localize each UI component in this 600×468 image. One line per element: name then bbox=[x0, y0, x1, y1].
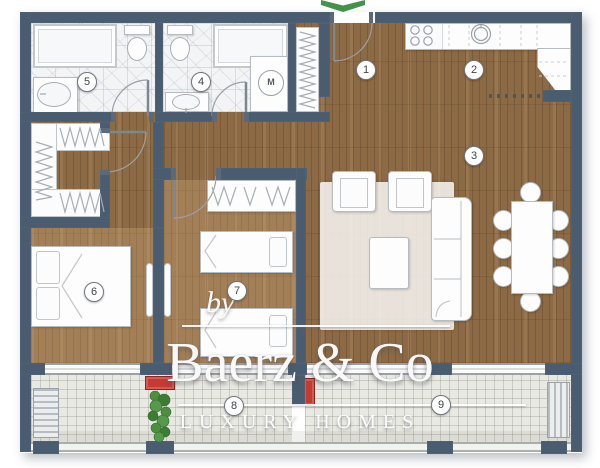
wall-segment bbox=[155, 23, 163, 112]
shower-5 bbox=[33, 24, 117, 68]
kitchen-pass-dots bbox=[489, 94, 541, 98]
walk-in-closet-bottom bbox=[31, 189, 110, 217]
wall-panel bbox=[164, 263, 171, 317]
dining-chair bbox=[520, 182, 541, 203]
wall-segment bbox=[545, 363, 582, 375]
room-number-badge-5: 5 bbox=[77, 72, 97, 92]
wall-segment bbox=[153, 228, 164, 363]
stove bbox=[406, 24, 443, 49]
wall-segment bbox=[20, 217, 110, 228]
railing-post bbox=[541, 441, 567, 454]
planter-red-1 bbox=[145, 376, 175, 390]
wardrobe-7 bbox=[207, 180, 296, 212]
pillow bbox=[269, 315, 287, 347]
wall-segment bbox=[296, 168, 306, 363]
ac-unit-8 bbox=[33, 388, 59, 438]
washing-machine-label: M bbox=[258, 70, 284, 96]
wall-segment bbox=[20, 112, 113, 122]
sink-4-basin bbox=[172, 94, 200, 110]
armchair-seat bbox=[340, 178, 368, 208]
coat-closet bbox=[296, 27, 319, 112]
armchair-1 bbox=[332, 171, 376, 212]
room-number-badge-1: 1 bbox=[356, 60, 376, 80]
wall-segment bbox=[140, 363, 172, 375]
wall-segment bbox=[20, 12, 330, 23]
wall-segment bbox=[220, 168, 307, 180]
room-number-badge-7: 7 bbox=[227, 281, 247, 301]
room-number-badge-8: 8 bbox=[224, 396, 244, 416]
coffee-table bbox=[369, 237, 409, 289]
wall-segment bbox=[20, 12, 31, 452]
railing-post bbox=[33, 441, 59, 454]
railing-post bbox=[146, 441, 174, 454]
wall-segment bbox=[153, 168, 173, 180]
wall-segment bbox=[292, 375, 305, 406]
room-number-badge-2: 2 bbox=[464, 60, 484, 80]
sofa bbox=[431, 197, 472, 321]
pillow bbox=[269, 237, 287, 267]
balcony-railing bbox=[31, 442, 571, 452]
window bbox=[307, 363, 430, 375]
ac-unit-9 bbox=[547, 382, 570, 438]
room-number-badge-9: 9 bbox=[431, 395, 451, 415]
dining-table bbox=[511, 201, 553, 294]
armchair-seat bbox=[396, 178, 424, 208]
wall-segment bbox=[100, 122, 110, 131]
wall-segment bbox=[155, 112, 214, 122]
floor-plan: M bbox=[0, 0, 600, 468]
wall-segment bbox=[430, 363, 452, 375]
wall-segment bbox=[288, 363, 307, 375]
railing-post bbox=[427, 441, 453, 454]
wall-segment bbox=[375, 12, 582, 23]
wall-segment bbox=[543, 90, 571, 102]
wall-segment bbox=[248, 112, 330, 122]
room-number-badge-4: 4 bbox=[191, 72, 211, 92]
toilet-5-cistern bbox=[124, 25, 150, 35]
wall-segment bbox=[319, 23, 330, 97]
window bbox=[45, 363, 140, 375]
wall-segment bbox=[571, 12, 582, 452]
pillow bbox=[36, 287, 60, 320]
wall-segment bbox=[288, 23, 296, 112]
window bbox=[172, 363, 288, 375]
window bbox=[452, 363, 545, 375]
dining-chair bbox=[520, 291, 541, 312]
room-number-badge-6: 6 bbox=[84, 282, 104, 302]
entrance-arrow-icon bbox=[321, 0, 365, 12]
armchair-2 bbox=[388, 171, 432, 212]
entry-opening bbox=[330, 12, 375, 23]
sink-5-basin bbox=[37, 82, 71, 107]
pillow bbox=[36, 251, 60, 284]
wall-segment bbox=[20, 363, 45, 375]
room-number-badge-3: 3 bbox=[464, 146, 484, 166]
wall-panel bbox=[146, 263, 153, 317]
toilet-4-cistern bbox=[167, 25, 193, 35]
